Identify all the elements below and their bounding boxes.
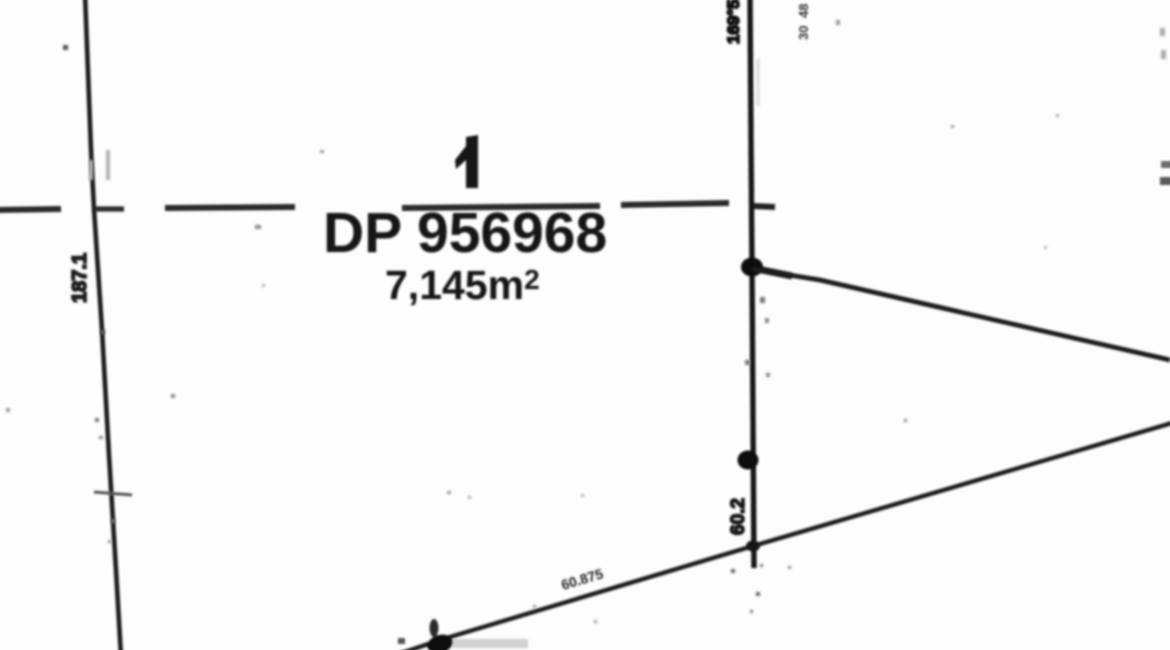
svg-text:48: 48 — [796, 4, 811, 18]
svg-text:60.2: 60.2 — [728, 498, 749, 535]
svg-text:DP 956968: DP 956968 — [323, 201, 607, 265]
svg-text:187.1: 187.1 — [69, 253, 91, 303]
svg-text:169°51'40": 169°51'40" — [724, 0, 743, 44]
svg-text:7,145m2: 7,145m2 — [385, 262, 540, 308]
svg-text:30: 30 — [796, 26, 811, 40]
